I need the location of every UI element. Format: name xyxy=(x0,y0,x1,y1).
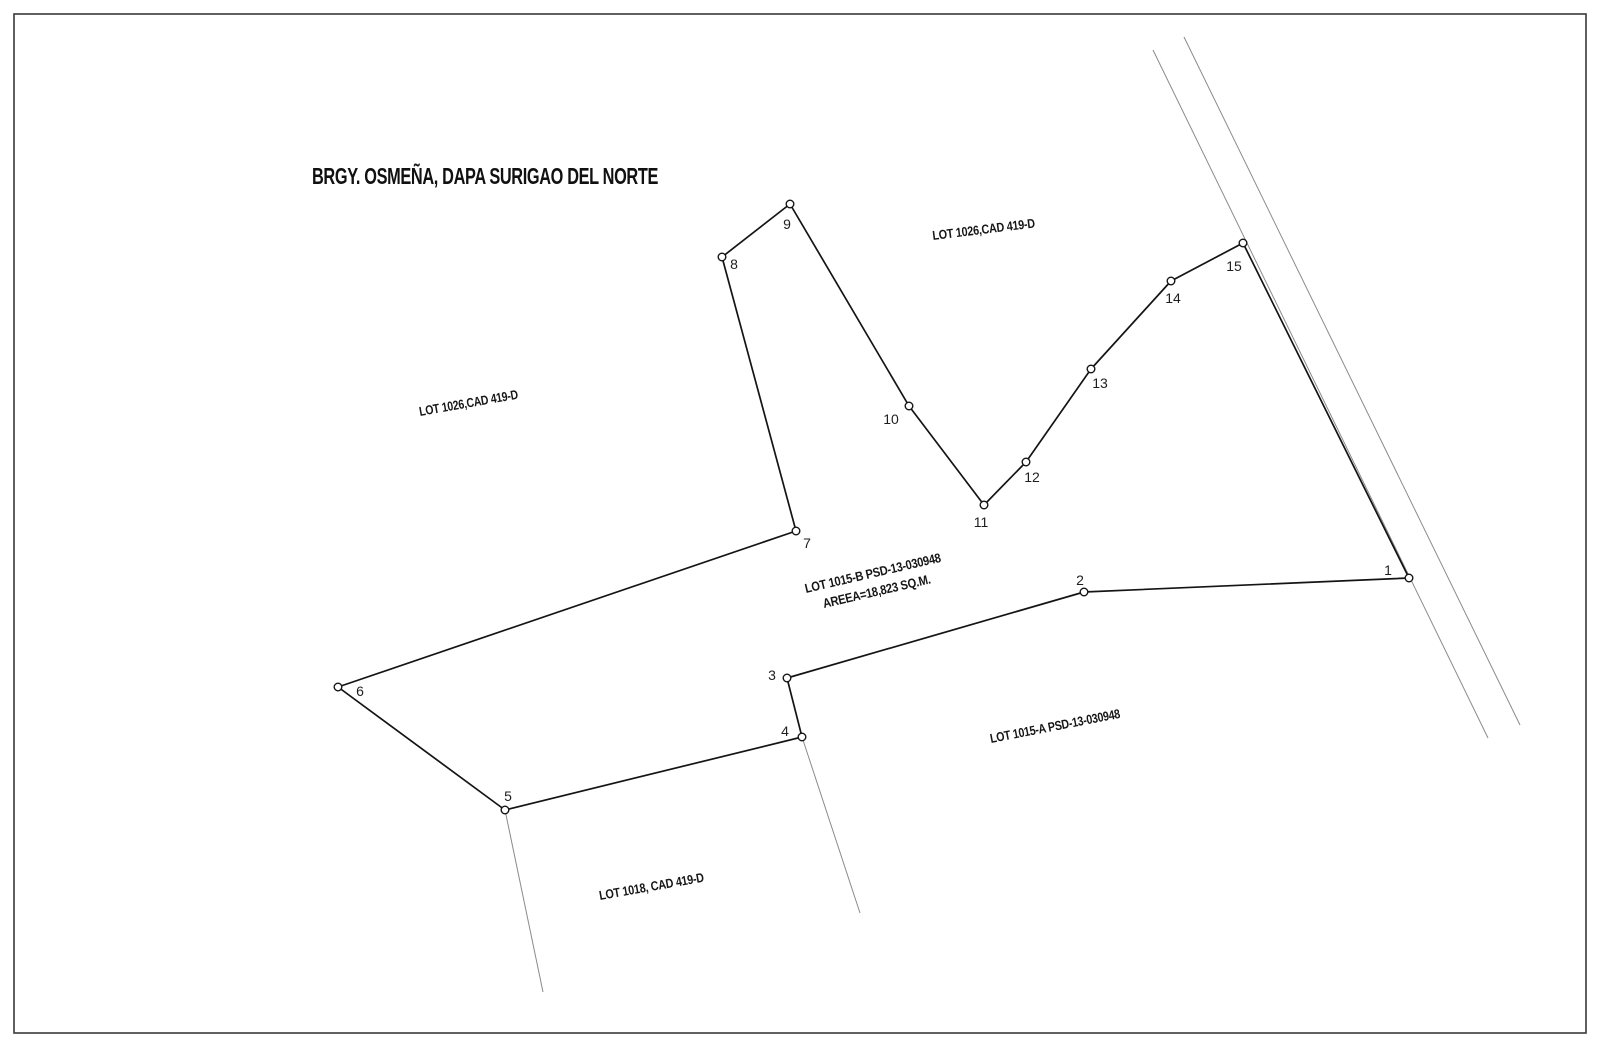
vertex-number-12: 12 xyxy=(1024,469,1040,485)
vertex-number-3: 3 xyxy=(768,667,776,683)
vertex-marker-14 xyxy=(1167,277,1175,285)
vertex-number-7: 7 xyxy=(803,535,811,551)
road-edge-line xyxy=(1153,50,1488,738)
vertex-marker-5 xyxy=(501,806,509,814)
vertex-marker-15 xyxy=(1239,239,1247,247)
tie-lines xyxy=(505,737,860,992)
vertex-number-10: 10 xyxy=(883,411,899,427)
vertex-number-4: 4 xyxy=(781,723,789,739)
road-lines xyxy=(1153,37,1520,738)
survey-plan-svg: 123456789101112131415 LOT 1026,CAD 419-D… xyxy=(0,0,1600,1047)
vertex-marker-3 xyxy=(783,674,791,682)
vertex-marker-1 xyxy=(1405,574,1413,582)
lot-labels: LOT 1026,CAD 419-DLOT 1026,CAD 419-DLOT … xyxy=(418,216,1121,903)
boundary-extension-line xyxy=(505,810,543,992)
vertex-number-2: 2 xyxy=(1076,572,1084,588)
lot-label-0: LOT 1026,CAD 419-D xyxy=(932,216,1036,243)
vertex-number-11: 11 xyxy=(974,514,989,530)
vertex-marker-12 xyxy=(1022,458,1030,466)
plan-title: BRGY. OSMEÑA, DAPA SURIGAO DEL NORTE xyxy=(312,162,658,189)
vertex-number-9: 9 xyxy=(783,216,791,232)
vertex-number-14: 14 xyxy=(1165,290,1181,306)
lot-label-4: LOT 1015-A PSD-13-030948 xyxy=(989,706,1121,746)
vertex-number-15: 15 xyxy=(1226,258,1242,274)
lot-label-5: LOT 1018, CAD 419-D xyxy=(598,870,705,903)
survey-plan-sheet: 123456789101112131415 LOT 1026,CAD 419-D… xyxy=(0,0,1600,1047)
vertex-number-13: 13 xyxy=(1092,375,1108,391)
vertex-marker-9 xyxy=(786,200,794,208)
vertex-marker-2 xyxy=(1080,588,1088,596)
vertex-marker-8 xyxy=(718,253,726,261)
vertex-number-8: 8 xyxy=(730,256,738,272)
vertex-number-6: 6 xyxy=(356,683,364,699)
vertex-marker-13 xyxy=(1087,365,1095,373)
lot-label-1: LOT 1026,CAD 419-D xyxy=(418,387,519,419)
boundary-extension-line xyxy=(802,737,860,913)
vertex-marker-6 xyxy=(334,683,342,691)
vertex-marker-10 xyxy=(905,402,913,410)
page-border xyxy=(14,14,1586,1033)
vertex-marker-4 xyxy=(798,733,806,741)
vertex-number-1: 1 xyxy=(1384,562,1392,578)
vertex-number-5: 5 xyxy=(504,788,512,804)
vertex-numbers: 123456789101112131415 xyxy=(356,216,1392,804)
lot-boundary-polygon xyxy=(338,204,1409,810)
vertex-marker-11 xyxy=(980,501,988,509)
road-edge-line xyxy=(1184,37,1520,725)
vertex-markers xyxy=(334,200,1413,814)
vertex-marker-7 xyxy=(792,527,800,535)
